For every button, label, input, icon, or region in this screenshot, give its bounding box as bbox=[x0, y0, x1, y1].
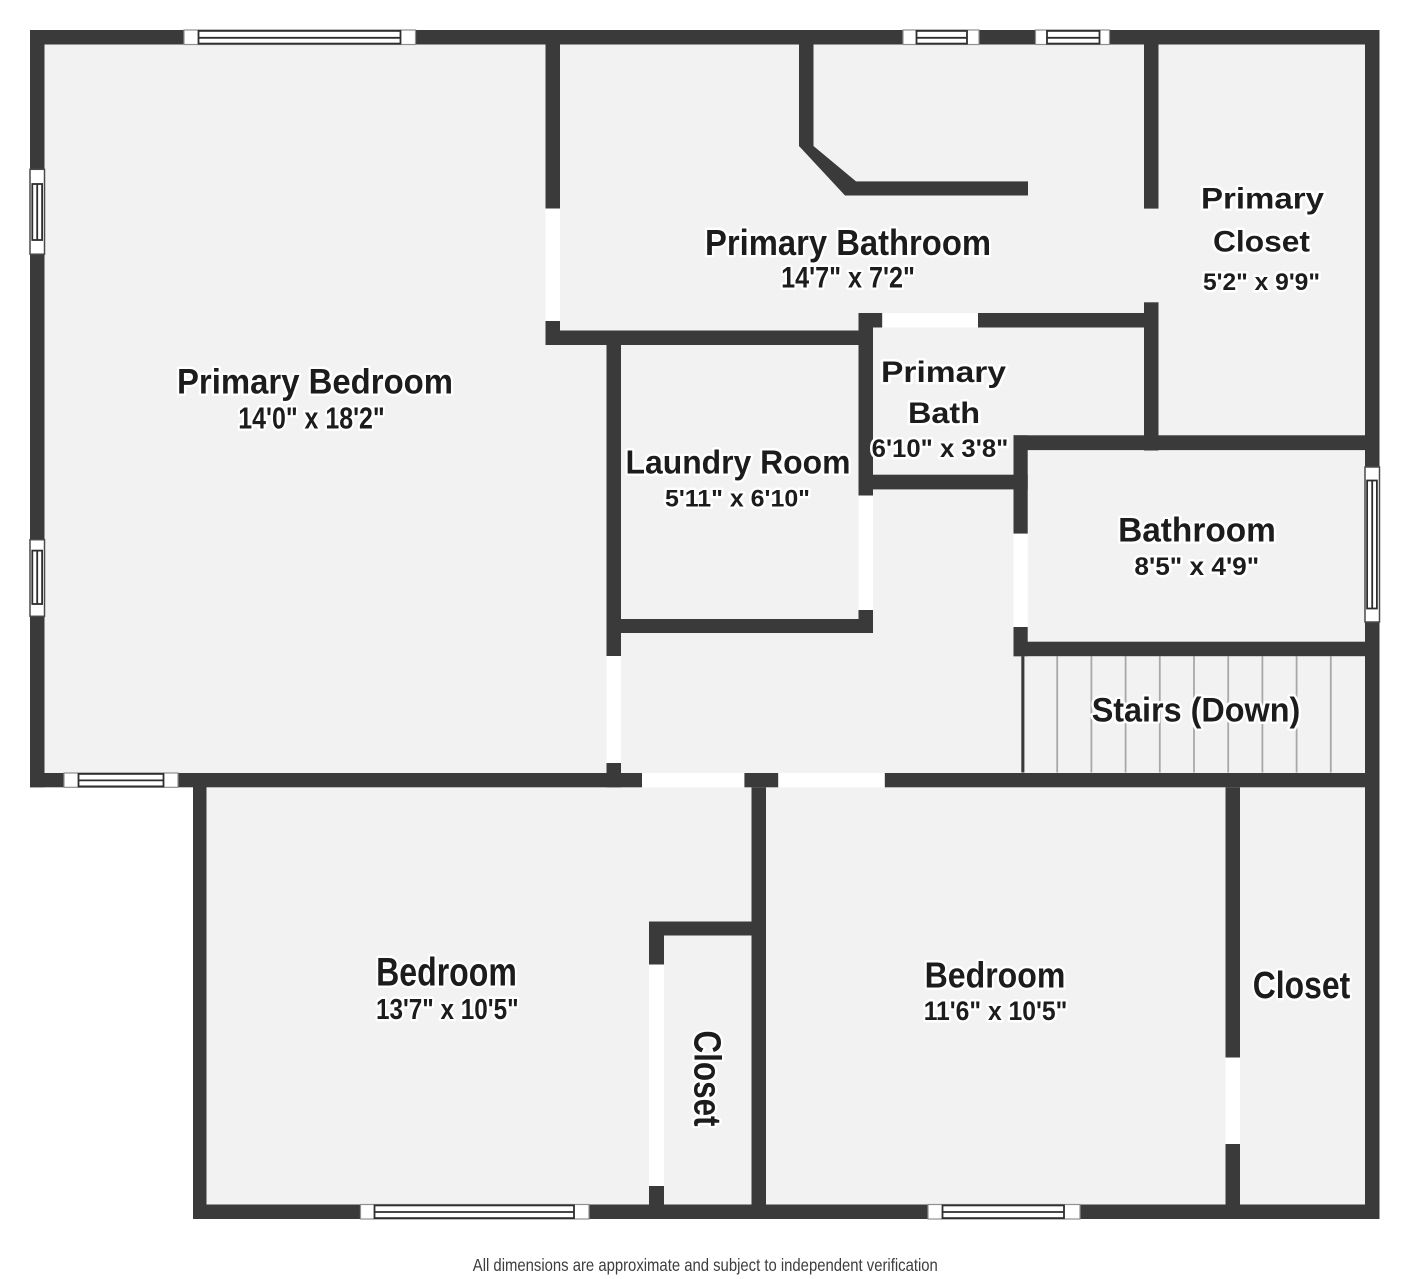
svg-text:Primary: Primary bbox=[881, 356, 1006, 389]
svg-text:Stairs (Down): Stairs (Down) bbox=[1092, 691, 1301, 729]
svg-text:Primary Bedroom: Primary Bedroom bbox=[177, 363, 453, 402]
svg-text:8'5" x 4'9": 8'5" x 4'9" bbox=[1134, 553, 1259, 581]
svg-text:Primary Bathroom: Primary Bathroom bbox=[705, 222, 991, 263]
svg-text:Bathroom: Bathroom bbox=[1118, 511, 1276, 549]
svg-text:Closet: Closet bbox=[1213, 226, 1310, 259]
svg-text:13'7" x 10'5": 13'7" x 10'5" bbox=[376, 994, 519, 1026]
svg-text:Laundry Room: Laundry Room bbox=[626, 444, 851, 481]
svg-text:Bedroom: Bedroom bbox=[925, 954, 1066, 995]
svg-text:Primary: Primary bbox=[1201, 183, 1324, 216]
svg-text:14'0" x 18'2": 14'0" x 18'2" bbox=[238, 400, 384, 435]
svg-text:6'10" x 3'8": 6'10" x 3'8" bbox=[872, 435, 1009, 463]
svg-text:Bedroom: Bedroom bbox=[376, 951, 517, 995]
svg-text:14'7" x 7'2": 14'7" x 7'2" bbox=[781, 261, 915, 294]
svg-text:All dimensions are approximate: All dimensions are approximate and subje… bbox=[473, 1255, 938, 1275]
svg-text:11'6" x 10'5": 11'6" x 10'5" bbox=[924, 996, 1068, 1026]
svg-text:5'11" x 6'10": 5'11" x 6'10" bbox=[665, 485, 810, 512]
svg-text:Closet: Closet bbox=[1253, 965, 1351, 1007]
svg-text:5'2" x 9'9": 5'2" x 9'9" bbox=[1203, 269, 1320, 296]
svg-text:Closet: Closet bbox=[686, 1031, 728, 1127]
svg-text:Bath: Bath bbox=[908, 397, 980, 430]
